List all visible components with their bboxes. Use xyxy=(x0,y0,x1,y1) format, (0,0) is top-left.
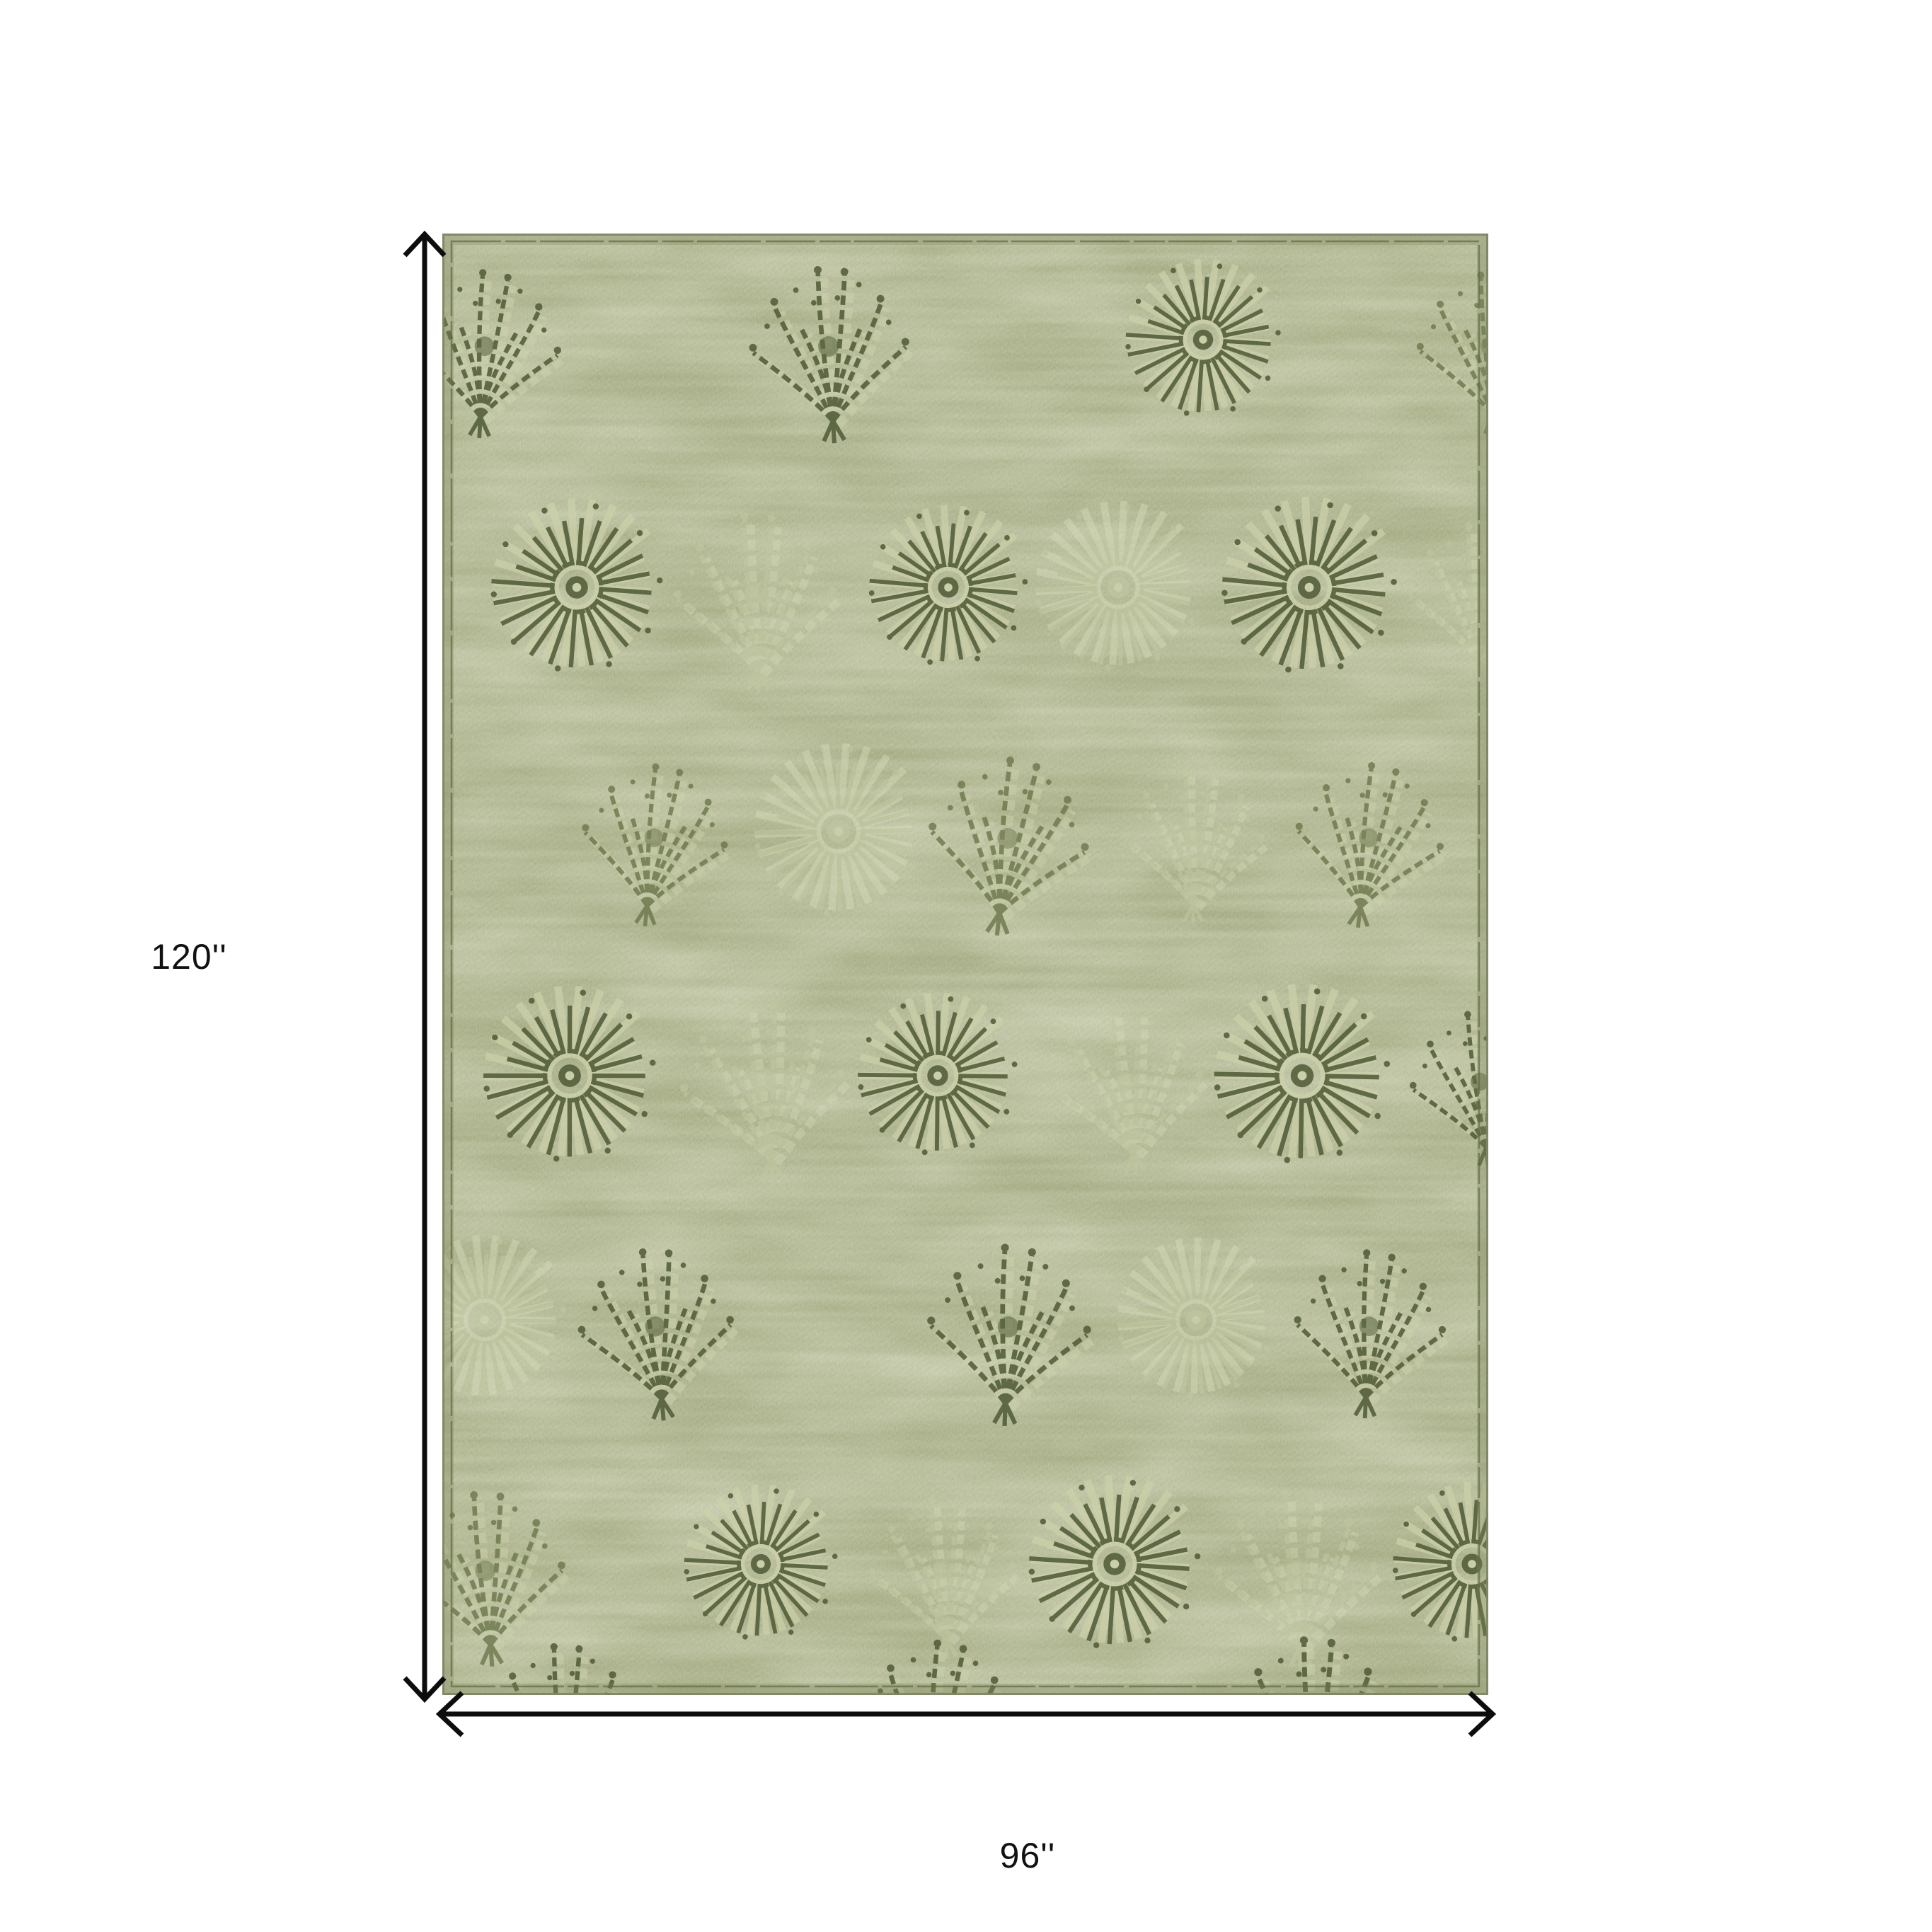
height-dimension-label: 120'' xyxy=(151,936,227,977)
width-dimension-label: 96'' xyxy=(1000,1835,1056,1876)
height-dimension-arrow xyxy=(405,234,444,1699)
rug-image xyxy=(442,234,1488,1695)
width-dimension-arrow xyxy=(439,1693,1493,1735)
product-dimension-diagram: 120'' 96'' xyxy=(0,0,1932,1932)
rug-texture xyxy=(442,234,1488,1695)
